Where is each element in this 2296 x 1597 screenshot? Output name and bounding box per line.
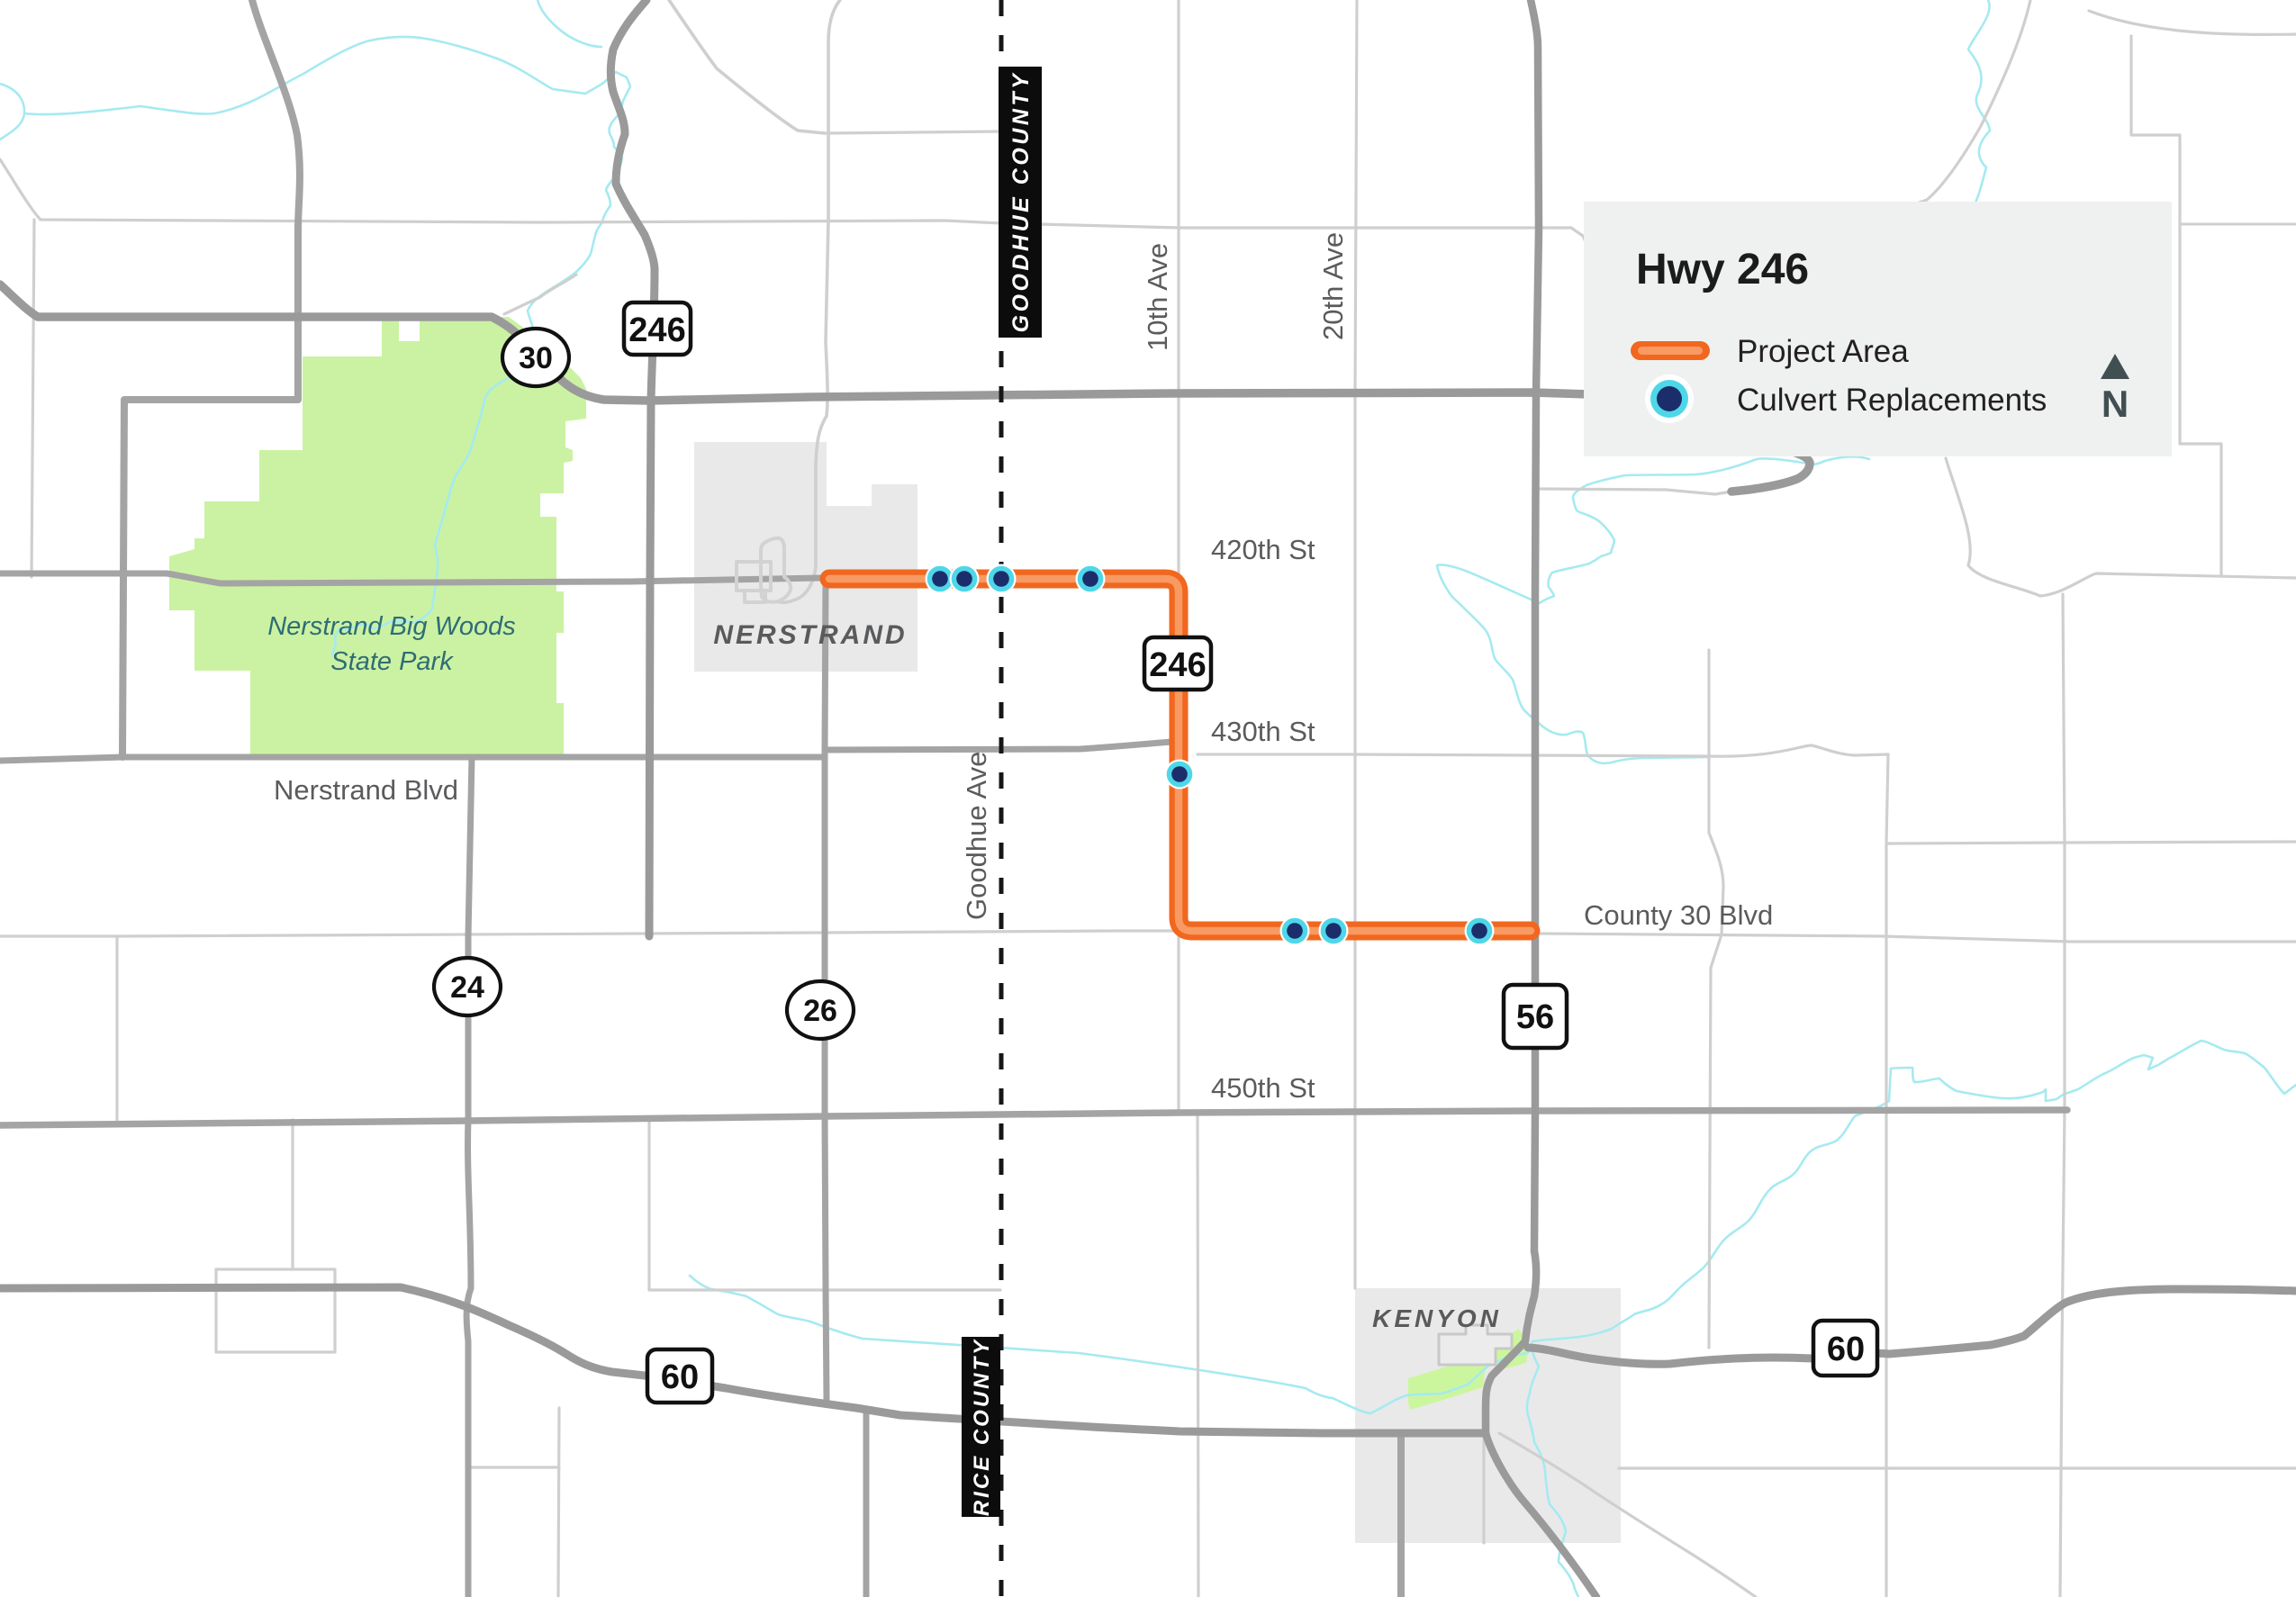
svg-text:246: 246: [1149, 646, 1206, 684]
svg-text:26: 26: [803, 994, 837, 1028]
svg-text:N: N: [2102, 383, 2129, 425]
svg-text:GOODHUE COUNTY: GOODHUE COUNTY: [1008, 71, 1034, 333]
svg-text:RICE COUNTY: RICE COUNTY: [970, 1338, 994, 1516]
svg-text:Culvert Replacements: Culvert Replacements: [1737, 383, 2047, 418]
svg-text:Nerstrand Blvd: Nerstrand Blvd: [274, 774, 458, 806]
svg-text:State Park: State Park: [330, 647, 454, 676]
svg-text:56: 56: [1516, 998, 1554, 1036]
svg-text:NERSTRAND: NERSTRAND: [713, 620, 907, 650]
svg-text:Goodhue Ave: Goodhue Ave: [961, 752, 992, 920]
svg-text:60: 60: [661, 1358, 699, 1396]
svg-text:KENYON: KENYON: [1372, 1304, 1502, 1332]
svg-text:Hwy 246: Hwy 246: [1636, 246, 1809, 293]
svg-text:420th St: 420th St: [1211, 534, 1315, 565]
svg-text:60: 60: [1827, 1331, 1865, 1368]
svg-text:30: 30: [519, 341, 553, 375]
svg-text:10th Ave: 10th Ave: [1142, 243, 1173, 351]
svg-text:County 30 Blvd: County 30 Blvd: [1584, 899, 1773, 931]
svg-text:20th Ave: 20th Ave: [1317, 232, 1349, 340]
svg-text:Project Area: Project Area: [1737, 334, 1909, 369]
svg-text:430th St: 430th St: [1211, 716, 1315, 747]
svg-text:450th St: 450th St: [1211, 1072, 1315, 1104]
svg-text:246: 246: [628, 311, 685, 349]
svg-text:Nerstrand Big Woods: Nerstrand Big Woods: [267, 612, 516, 641]
svg-text:24: 24: [450, 970, 484, 1005]
